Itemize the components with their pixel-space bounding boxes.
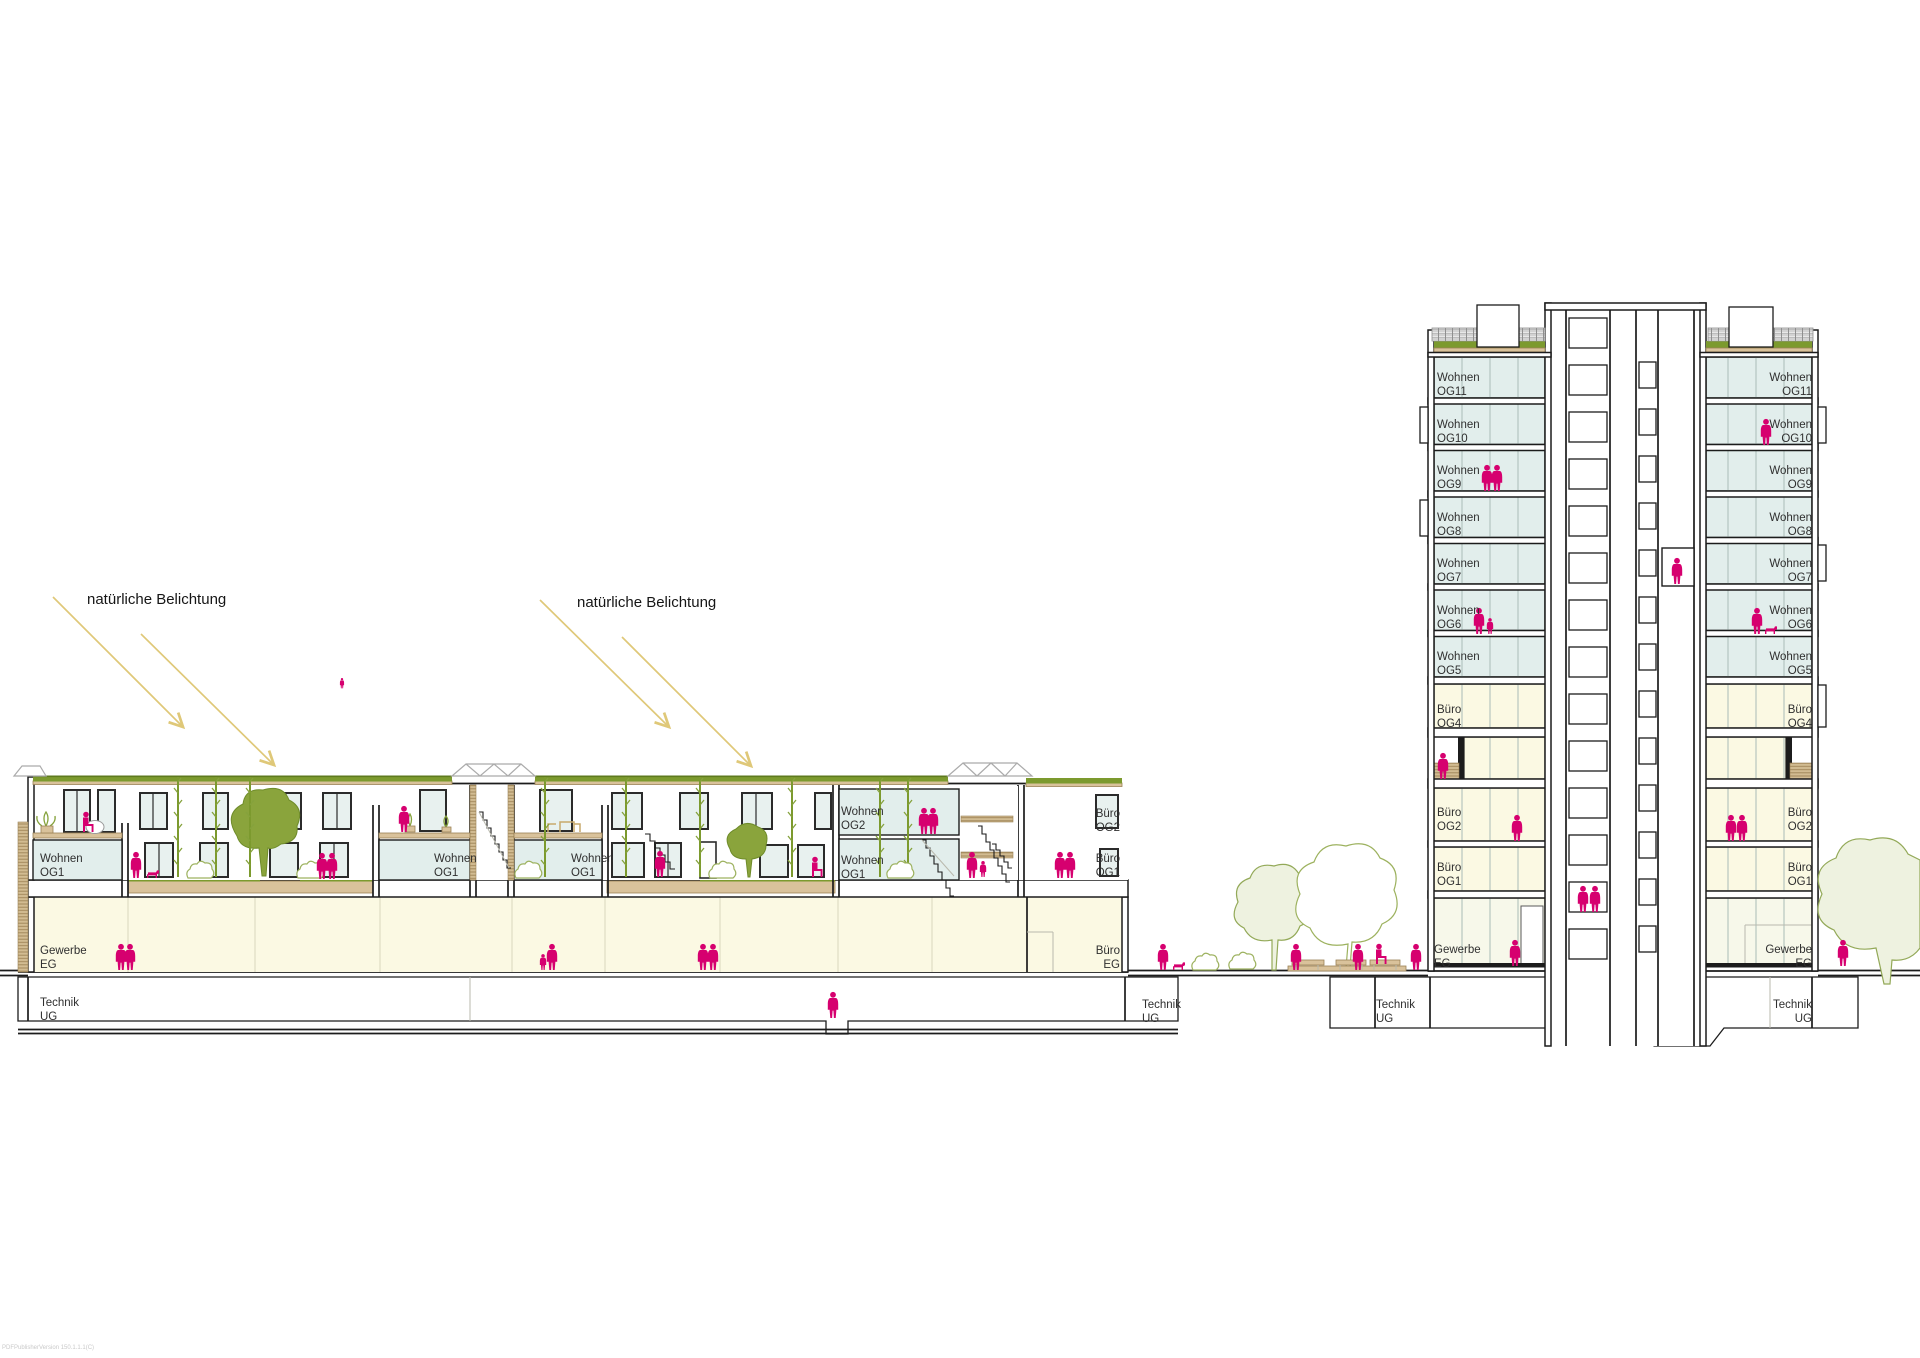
large-tree-icon [1818,838,1920,984]
skylight-truss-icon [14,763,1032,776]
roof-box [1477,305,1519,347]
tower-left-wall [1428,330,1434,971]
facade-louvers [18,822,28,972]
section-drawing: WohnenOG1WohnenOG1WohnenOG1WohnenOG2Wohn… [0,0,1920,1358]
left-building-basement [18,972,1178,1034]
plaza-tree-icon [1296,844,1397,968]
stairwell-1 [470,785,514,880]
tower [1420,303,1826,1046]
tower-core [1545,303,1706,1046]
daylight-annotation-2: natürliche Belichtung [577,594,716,611]
watermark-text: PDFPublisherVersion 150.1.1.1(C) [2,1345,94,1351]
daylight-arrows [53,597,751,766]
section-graphics [0,0,1920,1358]
left-building [14,763,1128,972]
daylight-annotation-1: natürliche Belichtung [87,591,226,608]
tower-right-wall [1812,330,1818,971]
roof-box [1729,307,1773,347]
